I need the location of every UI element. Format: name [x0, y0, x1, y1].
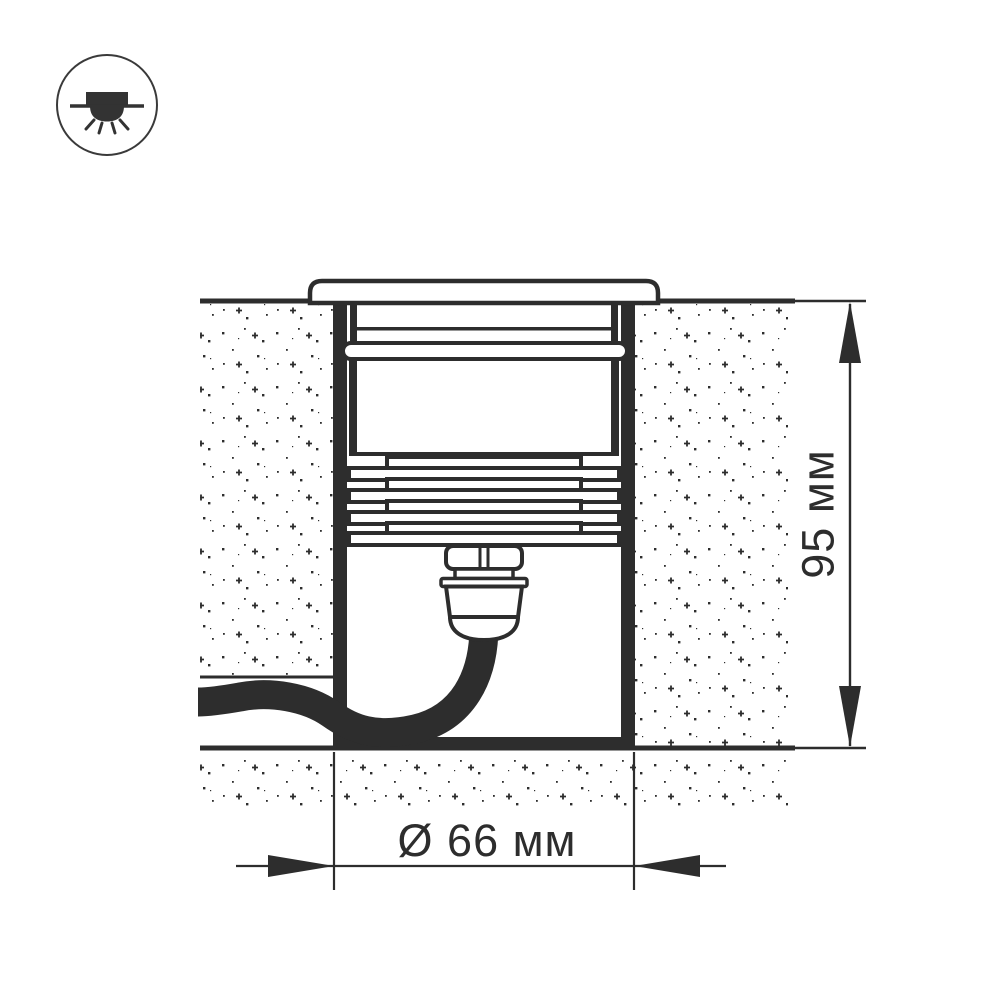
diameter-dimension-label: Ø 66 мм	[398, 815, 577, 866]
housing-wall-upper-right	[611, 303, 618, 345]
arrow-right	[268, 855, 334, 877]
arrow-left	[634, 855, 700, 877]
icon-housing	[86, 92, 128, 106]
arrow-down	[839, 686, 861, 747]
cable-gland	[441, 546, 527, 640]
sleeve-wall-right	[621, 303, 635, 748]
installation-cross-section-drawing: 95 мм Ø 66 мм	[0, 0, 1000, 1000]
base-plate	[349, 533, 619, 545]
recessed-downlight-icon	[57, 55, 157, 155]
sleeve-wall-left	[333, 303, 347, 748]
trim-flange	[310, 281, 658, 303]
gland-nut	[446, 546, 522, 569]
gasket-ring	[343, 343, 627, 359]
housing-wall-lower-right	[611, 359, 619, 456]
ground-band-bottom	[200, 752, 788, 813]
height-dimension-label: 95 мм	[793, 449, 844, 578]
arrow-up	[839, 302, 861, 363]
diagram-page: 95 мм Ø 66 мм	[0, 0, 1000, 1000]
gland-body	[446, 587, 522, 618]
gland-dome	[450, 617, 518, 640]
heatsink-fins	[349, 457, 619, 545]
ground-block-left	[200, 303, 333, 677]
housing-wall-lower-left	[349, 359, 357, 456]
luminaire	[310, 281, 658, 640]
ground-block-right	[635, 303, 788, 748]
glass-line	[357, 327, 611, 331]
housing-wall-upper-left	[350, 303, 357, 345]
